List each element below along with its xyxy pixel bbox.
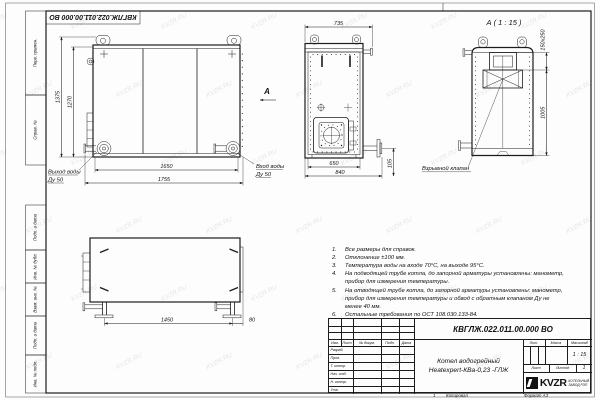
detail-view-title: А ( 1 : 15 ) bbox=[485, 18, 522, 27]
note-item: 1.Все размеры для справок. bbox=[332, 246, 564, 254]
note-item: 4.На подводящей трубе котла, до запорной… bbox=[332, 270, 564, 286]
tb-row-tkontr: Т. контр. bbox=[329, 362, 355, 370]
tb-sheet-label: Лист bbox=[523, 364, 549, 372]
side-view: 735 650 840 105 bbox=[305, 21, 396, 179]
right-foot bbox=[215, 302, 241, 318]
bottom-sheet-mark: 1 bbox=[433, 393, 435, 398]
tb-designation: КВГЛЖ.022.011.00.000 ВО bbox=[414, 319, 592, 339]
inlet-label-line2: Ду 50 bbox=[255, 172, 272, 178]
view-arrow-label: А bbox=[263, 87, 270, 96]
margin-label-podp-data-2: Подп. и дата bbox=[33, 321, 38, 349]
tb-header-mass: Масса bbox=[545, 339, 567, 346]
left-foot bbox=[83, 302, 113, 318]
tb-col-izm: Изм. bbox=[329, 339, 341, 346]
margin-label-vzam-inv: Взам. инв. № bbox=[33, 286, 38, 313]
front-view: 1375 1270 1650 1755 Выход воды Ду 50 Вхо… bbox=[47, 36, 285, 186]
tb-product-name: Котел водогрейный Heatexpert-КВа-0,23 -Г… bbox=[414, 339, 523, 394]
front-dim-1650: 1650 bbox=[160, 164, 173, 170]
outlet-label-line2: Ду 50 bbox=[47, 178, 64, 184]
margin-label-inv-dubl: Инв. № дубл. bbox=[33, 253, 38, 279]
bottom-format-label: Формат А3 bbox=[524, 393, 548, 398]
side-pipe-stub bbox=[363, 140, 382, 158]
bottom-copied-label: Копировал bbox=[446, 393, 468, 398]
note-item: 3.Температура воды на входе 70°С, на вых… bbox=[332, 262, 564, 270]
bottom-strip: 1 Копировал Формат А3 bbox=[328, 393, 591, 399]
tb-row-razrab: Разраб. bbox=[329, 346, 355, 354]
tb-col-data: Дата bbox=[399, 339, 414, 346]
note-item: 5.На отводящей трубе котла, до запорной … bbox=[332, 287, 564, 311]
view-direction-arrow: А bbox=[260, 87, 276, 100]
front-dim-1375: 1375 bbox=[56, 90, 62, 103]
tb-scale-value: 1 : 15 bbox=[567, 346, 592, 364]
note-item: 2.Отклонение ±100 мм. bbox=[332, 254, 564, 262]
tb-col-podp: Подп. bbox=[381, 339, 399, 346]
drawing-sheet: KVZR.RUKVZR.RUKVZR.RUKVZR.RUKVZR.RUKVZR.… bbox=[0, 0, 600, 400]
tb-col-list: Лист bbox=[341, 339, 353, 346]
margin-label-perv-primen: Перв. примен. bbox=[33, 39, 38, 68]
plan-view: 1450 80 bbox=[81, 238, 256, 326]
plan-dim-1450: 1450 bbox=[161, 318, 174, 324]
kvzr-logo-text: KVZR bbox=[540, 377, 567, 389]
tb-sheets-value: 1 bbox=[576, 364, 592, 372]
front-dim-1270: 1270 bbox=[68, 95, 74, 108]
outlet-label-line1: Выход воды bbox=[48, 170, 81, 176]
explosion-valve-label: Взрывной клапан bbox=[422, 165, 470, 172]
margin-label-inv-podl: Инв. № подл. bbox=[33, 361, 38, 388]
plan-dim-80: 80 bbox=[249, 318, 256, 324]
tb-header-scale: Масштаб bbox=[567, 339, 592, 346]
inlet-label-line1: Вход воды bbox=[256, 164, 285, 170]
detail-view-a: А ( 1 : 15 ) Взрывной клапан bbox=[422, 18, 550, 172]
company-cell: KVZR КОТЕЛЬНЫЙ ЗАВОД РЭП bbox=[524, 373, 591, 393]
margin-label-sprav-no: Справ. № bbox=[33, 120, 38, 140]
tb-sheets-label: Листов bbox=[549, 364, 576, 372]
designation-top-box: КВГЛЖ.022.011.00.000 ВО bbox=[46, 11, 140, 24]
company-name: КОТЕЛЬНЫЙ ЗАВОД РЭП bbox=[568, 379, 589, 388]
side-dim-735: 735 bbox=[334, 21, 344, 27]
margin-label-podp-data-1: Подп. и дата bbox=[33, 213, 38, 241]
tb-row-nach: Нач. отд. bbox=[329, 370, 355, 378]
designation-top-text: КВГЛЖ.022.011.00.000 ВО bbox=[49, 13, 137, 20]
side-dim-840: 840 bbox=[335, 170, 345, 176]
title-block: Изм. Лист № докум. Подп. Дата Разраб. Пр… bbox=[328, 318, 591, 393]
side-dim-650: 650 bbox=[329, 161, 339, 167]
tb-row-nkontr: Н. контр. bbox=[329, 378, 355, 386]
side-dim-105: 105 bbox=[388, 158, 394, 168]
burner-port bbox=[314, 118, 357, 154]
detail-dim-1005: 1005 bbox=[541, 106, 547, 119]
margin-column: Перв. примен. Справ. № Подп. и дата Инв.… bbox=[26, 11, 47, 393]
detail-dim-150x250: 150x250 bbox=[541, 29, 547, 51]
front-dim-1755: 1755 bbox=[158, 177, 171, 183]
technical-notes: 1.Все размеры для справок. 2.Отклонение … bbox=[332, 246, 564, 319]
tb-header-lit: Лит. bbox=[523, 339, 545, 346]
kvzr-logo-icon bbox=[526, 377, 538, 389]
tb-col-doc: № докум. bbox=[353, 339, 381, 346]
tb-row-prov: Пров. bbox=[329, 354, 355, 362]
